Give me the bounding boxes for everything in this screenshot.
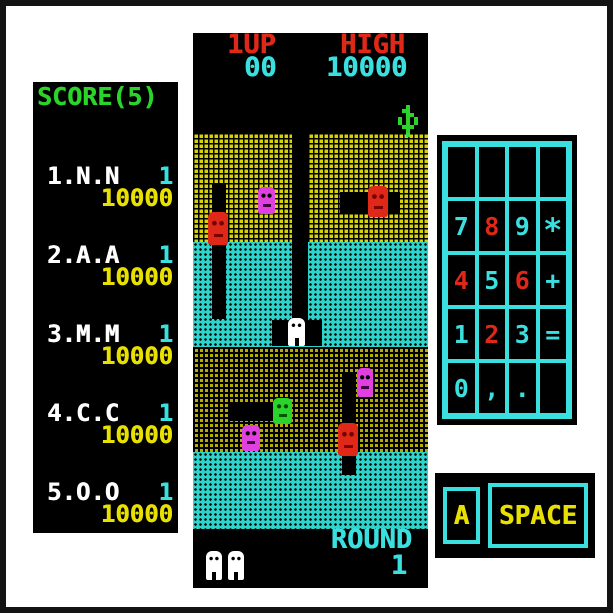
key-empty[interactable]: [446, 145, 477, 199]
key-comma[interactable]: ,: [477, 361, 508, 415]
score-entry-2: 2.A.A1 10000: [33, 245, 178, 288]
magenta-monster-2: [242, 425, 260, 451]
key-period[interactable]: .: [507, 361, 538, 415]
key-empty[interactable]: [477, 145, 508, 199]
entry-score: 10000: [33, 266, 178, 288]
magenta-monster-3: [357, 368, 373, 397]
key-empty[interactable]: [538, 145, 569, 199]
score-entry-1: 1.N.N1 10000: [33, 166, 178, 209]
entry-score: 10000: [33, 345, 178, 367]
flower-icon: [398, 105, 402, 109]
key-plus[interactable]: +: [538, 253, 569, 307]
score-entry-3: 3.M.M1 10000: [33, 324, 178, 367]
key-0[interactable]: 0: [446, 361, 477, 415]
player-sprite: [288, 318, 305, 346]
entry-score: 10000: [33, 187, 178, 209]
score-entry-5: 5.O.O1 10000: [33, 482, 178, 525]
life-icon: [206, 551, 222, 580]
green-monster: [273, 398, 292, 424]
lives-indicator: [206, 551, 244, 580]
hud-high-score: 10000: [326, 56, 407, 79]
key-1[interactable]: 1: [446, 307, 477, 361]
key-7[interactable]: 7: [446, 199, 477, 253]
key-2[interactable]: 2: [477, 307, 508, 361]
dirt-layer-lower: [193, 347, 428, 452]
dirt-layer-top: [193, 133, 428, 242]
key-9[interactable]: 9: [507, 199, 538, 253]
red-monster-3: [338, 423, 358, 456]
tunnel-left-vertical: [212, 183, 226, 319]
cyan-layer-lower: [193, 452, 428, 529]
keypad-grid: 7 8 9 * 4 5 6 + 1 2 3 = 0 , .: [442, 141, 572, 419]
keypad-panel: 7 8 9 * 4 5 6 + 1 2 3 = 0 , .: [437, 135, 577, 425]
red-monster-1: [208, 212, 228, 245]
hud-1up-score: 00: [244, 56, 277, 79]
key-8[interactable]: 8: [477, 199, 508, 253]
score-panel: SCORE(5) 1.N.N1 10000 2.A.A1 10000 3.M.M…: [33, 82, 178, 533]
red-monster-2: [368, 186, 388, 217]
tunnel-lower-left-horizontal: [230, 404, 278, 421]
key-asterisk[interactable]: *: [538, 199, 569, 253]
entry-score: 10000: [33, 424, 178, 446]
life-icon: [228, 551, 244, 580]
key-empty[interactable]: [538, 361, 569, 415]
key-4[interactable]: 4: [446, 253, 477, 307]
score-entry-4: 4.C.C1 10000: [33, 403, 178, 446]
emulator-screen: SCORE(5) 1.N.N1 10000 2.A.A1 10000 3.M.M…: [0, 0, 613, 613]
hud-round-value: 1: [391, 554, 407, 577]
key-empty[interactable]: [507, 145, 538, 199]
entry-score: 10000: [33, 503, 178, 525]
playfield: 1UP 00 HIGH 10000 ROUND 1: [193, 33, 428, 588]
key-3[interactable]: 3: [507, 307, 538, 361]
action-buttons-panel: A SPACE: [435, 473, 595, 558]
key-5[interactable]: 5: [477, 253, 508, 307]
key-equals[interactable]: =: [538, 307, 569, 361]
score-title: SCORE(5): [37, 85, 157, 109]
magenta-monster-1: [258, 187, 275, 214]
tunnel-center-vertical: [292, 133, 308, 325]
key-6[interactable]: 6: [507, 253, 538, 307]
hud-round-label: ROUND: [331, 528, 412, 551]
a-button[interactable]: A: [443, 487, 480, 544]
space-button[interactable]: SPACE: [488, 483, 588, 548]
